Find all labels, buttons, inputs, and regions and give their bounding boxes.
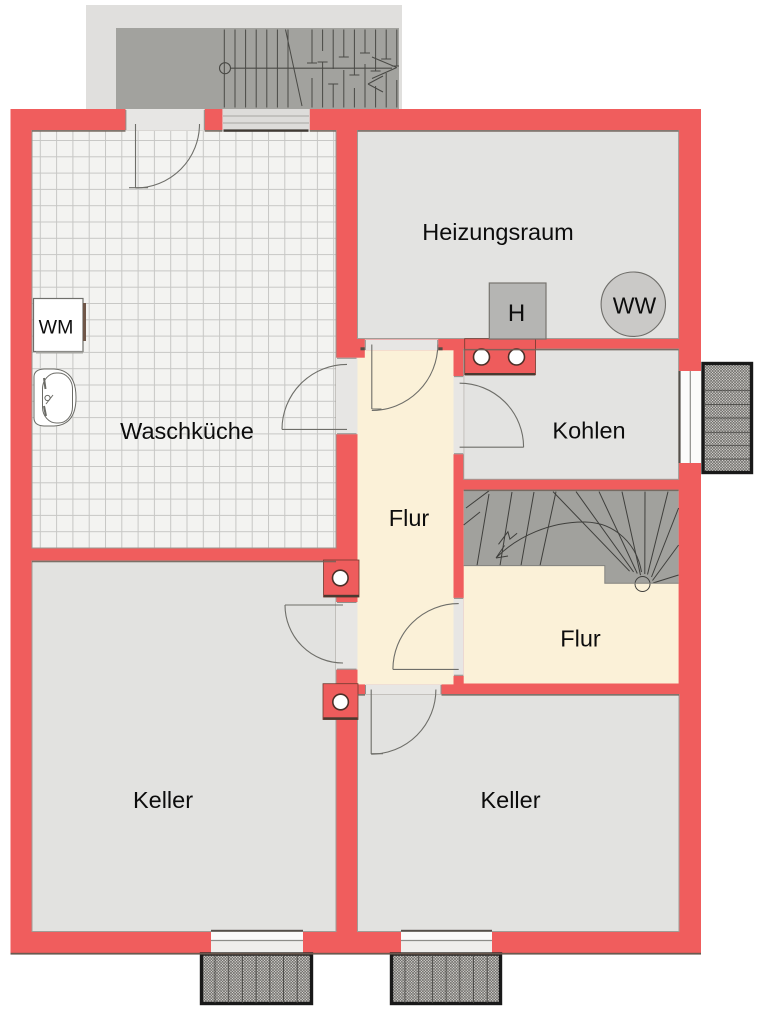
svg-text:WM: WM	[39, 317, 74, 339]
svg-text:Flur: Flur	[560, 626, 601, 652]
svg-text:Keller: Keller	[480, 787, 540, 813]
svg-text:Kohlen: Kohlen	[552, 418, 625, 444]
svg-text:Flur: Flur	[389, 505, 430, 531]
svg-text:Keller: Keller	[133, 787, 193, 813]
svg-text:Waschküche: Waschküche	[120, 418, 254, 444]
svg-text:H: H	[508, 300, 525, 327]
svg-text:Heizungsraum: Heizungsraum	[422, 219, 574, 245]
svg-text:WW: WW	[613, 293, 657, 319]
